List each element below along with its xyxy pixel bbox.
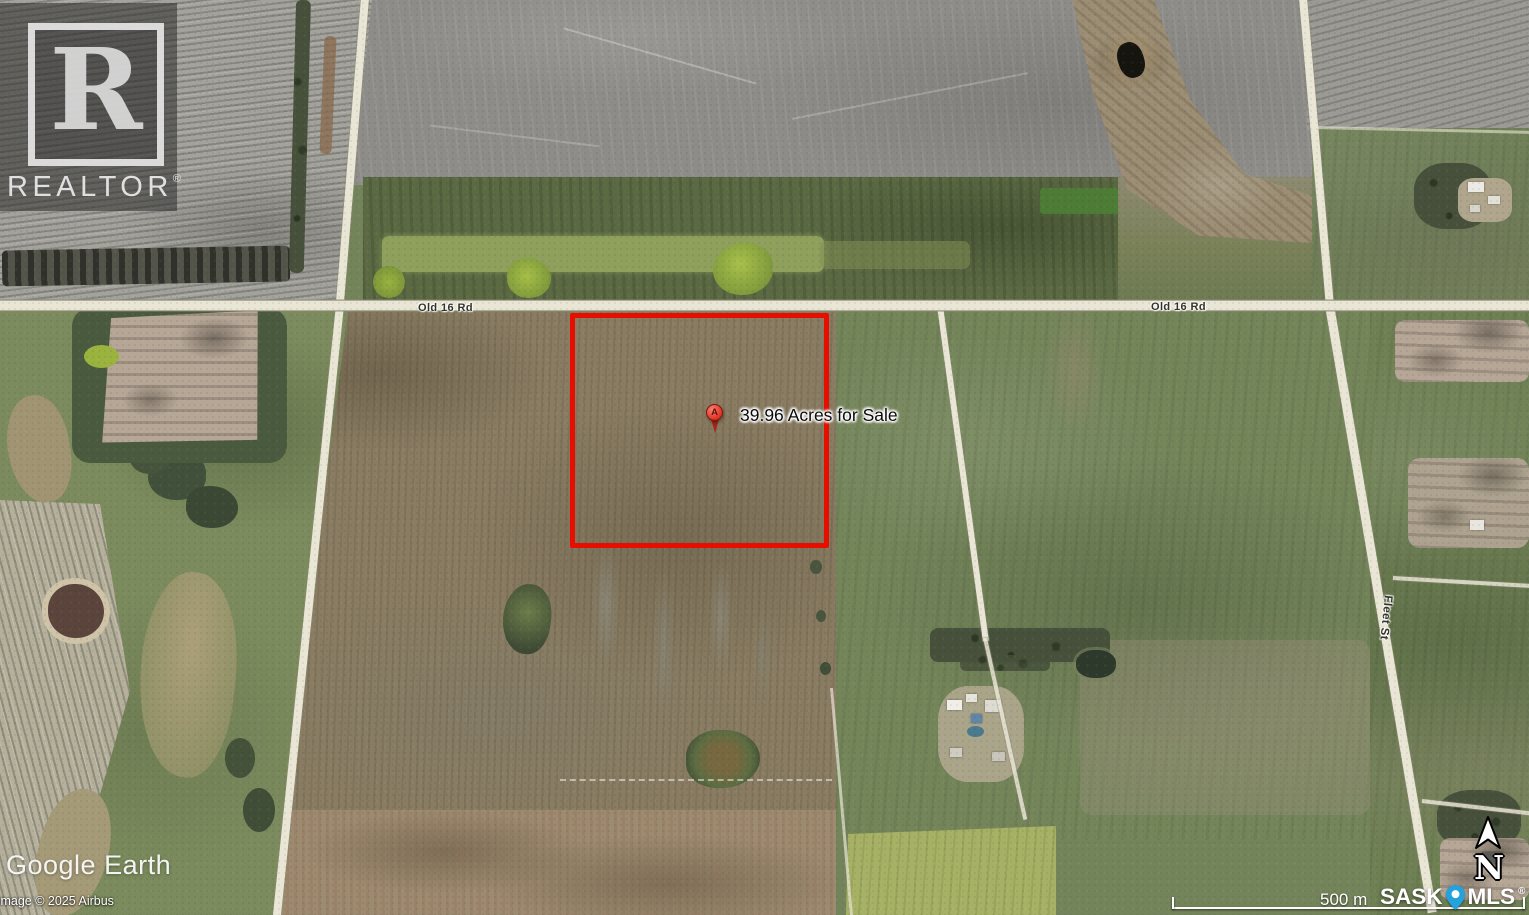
building-blue bbox=[971, 714, 982, 723]
field-light-band bbox=[820, 241, 970, 269]
imagery-attribution: Image © 2025 Airbus bbox=[0, 894, 114, 908]
building bbox=[992, 752, 1005, 761]
registered-symbol: ® bbox=[173, 173, 181, 185]
building bbox=[1470, 205, 1480, 212]
slough bbox=[243, 788, 275, 832]
field-dirt-trails bbox=[1020, 312, 1130, 452]
parcel-outline[interactable] bbox=[570, 313, 829, 548]
scale-bar-tick-left bbox=[1172, 897, 1174, 909]
sask-mls-logo: SASK MLS ® bbox=[1380, 884, 1525, 910]
sask-wordmark: SASK bbox=[1380, 884, 1443, 910]
slough-dot bbox=[810, 560, 822, 574]
building bbox=[1470, 520, 1484, 530]
highway-old-16 bbox=[0, 300, 1529, 311]
tree-clump bbox=[507, 258, 551, 298]
field-pink-zone bbox=[1080, 640, 1370, 815]
realtor-wordmark: REALTOR® bbox=[7, 171, 175, 204]
field-dark-band bbox=[2, 245, 291, 286]
north-label: N bbox=[1474, 848, 1504, 887]
realtor-watermark: R REALTOR® bbox=[0, 3, 177, 211]
marker-tail bbox=[711, 419, 719, 433]
road-label-old16-east: Old 16 Rd bbox=[1151, 301, 1206, 313]
tree-clump bbox=[713, 243, 773, 295]
industrial-pad bbox=[98, 310, 268, 448]
marker-head: A bbox=[706, 404, 723, 421]
listing-label: 39.96 Acres for Sale bbox=[740, 405, 898, 426]
gravel-area bbox=[1395, 320, 1529, 382]
location-marker[interactable]: A bbox=[703, 404, 729, 440]
field-region bbox=[1307, 0, 1529, 130]
field-bright-green bbox=[1040, 188, 1120, 214]
slough bbox=[186, 486, 238, 528]
building bbox=[1468, 182, 1484, 192]
building bbox=[950, 748, 962, 757]
gravel-area bbox=[1408, 458, 1529, 548]
field-pink-band bbox=[278, 810, 836, 915]
satellite-map[interactable]: Old 16 Rd Old 16 Rd Fleet St A 39.96 Acr… bbox=[0, 0, 1529, 915]
field-yellow bbox=[846, 826, 1056, 915]
road-label-old16-west: Old 16 Rd bbox=[418, 302, 473, 314]
mls-registered-symbol: ® bbox=[1518, 886, 1525, 897]
farm-pond bbox=[967, 726, 984, 737]
building bbox=[947, 700, 962, 710]
google-earth-logo: Google Earth bbox=[6, 850, 171, 881]
north-arrow-icon bbox=[1474, 816, 1502, 850]
farmyard bbox=[1458, 178, 1512, 222]
building bbox=[966, 694, 977, 702]
tree-clump bbox=[84, 345, 119, 368]
slough-dot bbox=[816, 610, 826, 622]
slough bbox=[225, 738, 255, 778]
realtor-monogram: R bbox=[49, 35, 142, 147]
corrals bbox=[960, 655, 1050, 671]
realtor-logo-box: R bbox=[28, 23, 164, 166]
slough-dot bbox=[820, 662, 831, 675]
mls-pin-icon bbox=[1446, 885, 1465, 910]
pond bbox=[42, 578, 110, 644]
building bbox=[1488, 196, 1500, 204]
scale-label: 500 m bbox=[1320, 890, 1367, 910]
tree-clump bbox=[373, 266, 405, 298]
marker-letter: A bbox=[711, 407, 718, 418]
dugout-pond bbox=[1076, 650, 1116, 678]
mls-wordmark: MLS bbox=[1468, 884, 1516, 910]
field-line bbox=[560, 779, 832, 781]
